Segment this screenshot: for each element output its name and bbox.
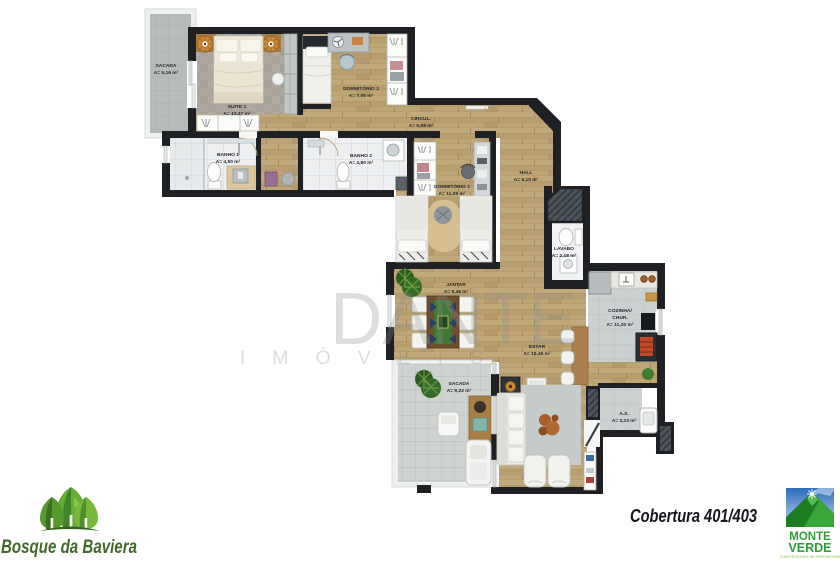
svg-text:VERDE: VERDE: [788, 541, 831, 555]
svg-text:A= 9,22 m²: A= 9,22 m²: [447, 388, 472, 394]
svg-text:HALL: HALL: [519, 170, 532, 176]
svg-text:BANHO 1: BANHO 1: [217, 152, 239, 158]
svg-text:A= 13,47 m²: A= 13,47 m²: [223, 111, 251, 117]
svg-text:A= 2,18 m²: A= 2,18 m²: [552, 253, 577, 259]
svg-text:SACADA: SACADA: [449, 381, 470, 387]
svg-text:CIRCUL.: CIRCUL.: [411, 116, 431, 122]
svg-text:Bosque da Baviera: Bosque da Baviera: [1, 537, 137, 558]
svg-text:A= 5,16 m²: A= 5,16 m²: [154, 70, 179, 76]
svg-text:CONSTRUTORA E INCORPORADORA: CONSTRUTORA E INCORPORADORA: [780, 555, 840, 559]
svg-text:A= 5,08 m²: A= 5,08 m²: [409, 123, 434, 129]
svg-text:A= 4,80 m²: A= 4,80 m²: [349, 160, 374, 166]
svg-text:A.S.: A.S.: [619, 411, 629, 417]
svg-text:Cobertura 401/403: Cobertura 401/403: [630, 505, 758, 526]
svg-text:A= 3,23 m²: A= 3,23 m²: [612, 418, 637, 424]
svg-text:COZINHA/: COZINHA/: [608, 308, 632, 314]
svg-text:IMÓVEIS: IMÓVEIS: [240, 346, 510, 369]
svg-text:A= 7,05 m²: A= 7,05 m²: [349, 93, 374, 99]
svg-text:A= 4,50 m²: A= 4,50 m²: [216, 159, 241, 165]
svg-text:A= 8,10 m²: A= 8,10 m²: [514, 177, 539, 183]
svg-text:A= 11,30 m²: A= 11,30 m²: [606, 322, 633, 328]
svg-text:SACADA: SACADA: [156, 63, 177, 69]
svg-text:BANHO 2: BANHO 2: [350, 153, 372, 159]
svg-text:A= 11,09 m²: A= 11,09 m²: [438, 191, 465, 197]
svg-text:LAVABO: LAVABO: [554, 246, 574, 252]
svg-text:CHUR.: CHUR.: [612, 315, 628, 321]
svg-text:SUITE 1: SUITE 1: [228, 104, 247, 110]
